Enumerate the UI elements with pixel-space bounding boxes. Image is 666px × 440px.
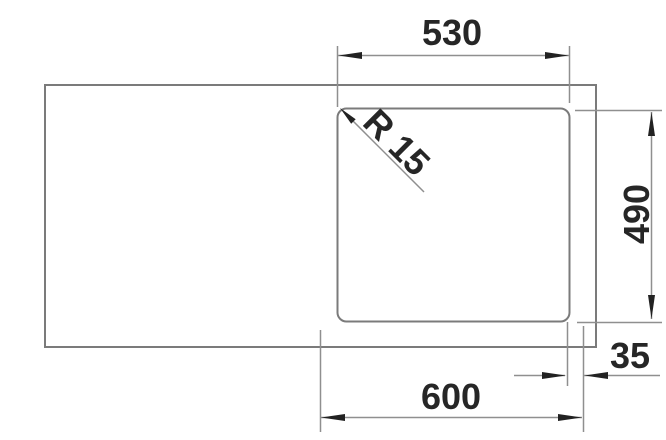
dimension-corner-radius: R 15 (340, 101, 438, 192)
worktop-outline (45, 85, 596, 347)
dimension-label-490: 490 (616, 184, 657, 244)
arrowhead-right-icon (545, 52, 569, 59)
arrowhead-left-icon (321, 414, 345, 421)
arrowhead-right-icon (558, 414, 582, 421)
drawing-canvas: 530 490 600 35 (0, 0, 666, 440)
arrowhead-right-icon (542, 372, 566, 379)
arrowhead-left-icon (339, 52, 363, 59)
dimension-label-530: 530 (422, 12, 482, 53)
dimension-bowl-depth: 490 (575, 111, 662, 323)
sink-technical-drawing: 530 490 600 35 (0, 0, 666, 440)
object-outlines (45, 85, 596, 347)
dimension-overall-width: 600 (321, 326, 584, 432)
dimension-label-35: 35 (610, 335, 650, 376)
dimension-label-600: 600 (421, 376, 481, 417)
dimension-label-r15: R 15 (355, 101, 438, 184)
arrowhead-down-icon (648, 295, 655, 319)
arrowhead-up-icon (648, 112, 655, 136)
arrowhead-upleft-icon (340, 108, 356, 124)
dimension-bowl-width: 530 (338, 12, 570, 107)
dimension-edge-offset: 35 (514, 322, 660, 386)
arrowhead-left-icon (585, 372, 609, 379)
